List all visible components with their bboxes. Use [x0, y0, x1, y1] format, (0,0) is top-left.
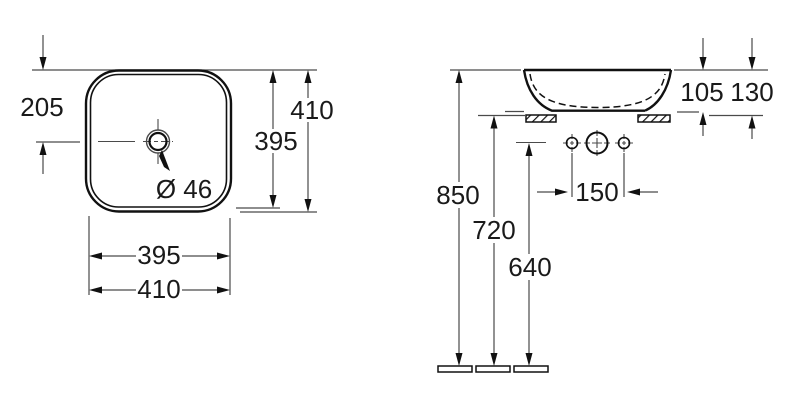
technical-drawing-page: 205 Ø 46 395 410 [0, 0, 800, 405]
basin-inner-bowl-dashed [530, 74, 665, 108]
arrowhead [491, 353, 498, 366]
counter-pad-right [638, 115, 670, 122]
dim-counter-to-floor: 720 [472, 215, 515, 245]
drain-leader-arrow [159, 150, 170, 171]
dim-drain-diameter: Ø 46 [156, 174, 212, 204]
arrowhead [89, 287, 102, 294]
dim-outer-width: 410 [137, 274, 180, 304]
arrowhead [456, 70, 463, 83]
arrowhead [526, 143, 533, 156]
arrowhead [700, 57, 707, 70]
dim-inner-width: 395 [137, 240, 180, 270]
arrowhead [89, 253, 102, 260]
floor-tile [514, 366, 548, 372]
arrowhead [40, 57, 47, 70]
arrowhead [217, 253, 230, 260]
top-view: 205 Ø 46 395 410 [20, 35, 333, 304]
floor-tile [438, 366, 472, 372]
dim-tap-line-to-floor: 640 [508, 252, 551, 282]
arrowhead [270, 195, 277, 208]
basin-body-outline [524, 70, 671, 111]
dim-inner-height: 395 [254, 126, 297, 156]
arrowhead [526, 353, 533, 366]
floor-tile [476, 366, 510, 372]
arrowhead [749, 116, 756, 129]
dim-rim-to-floor: 850 [436, 180, 479, 210]
dim-total-height: 130 [730, 77, 773, 107]
washbasin-dimension-drawing: 205 Ø 46 395 410 [0, 0, 800, 405]
arrowhead [270, 70, 277, 83]
dim-outer-height: 410 [290, 95, 333, 125]
arrowhead [491, 116, 498, 129]
arrowhead [700, 112, 707, 125]
arrowhead [627, 189, 640, 196]
arrowhead [555, 189, 568, 196]
counter-pad-left [526, 115, 556, 122]
dim-center-offset: 205 [20, 92, 63, 122]
arrowhead [40, 142, 47, 155]
arrowhead [305, 199, 312, 212]
arrowhead [749, 57, 756, 70]
side-view: 105 130 150 850 720 [436, 38, 773, 372]
arrowhead [305, 70, 312, 83]
dim-basin-height: 105 [680, 77, 723, 107]
arrowhead [456, 353, 463, 366]
arrowhead [217, 287, 230, 294]
dim-tap-hole-spacing: 150 [575, 177, 618, 207]
